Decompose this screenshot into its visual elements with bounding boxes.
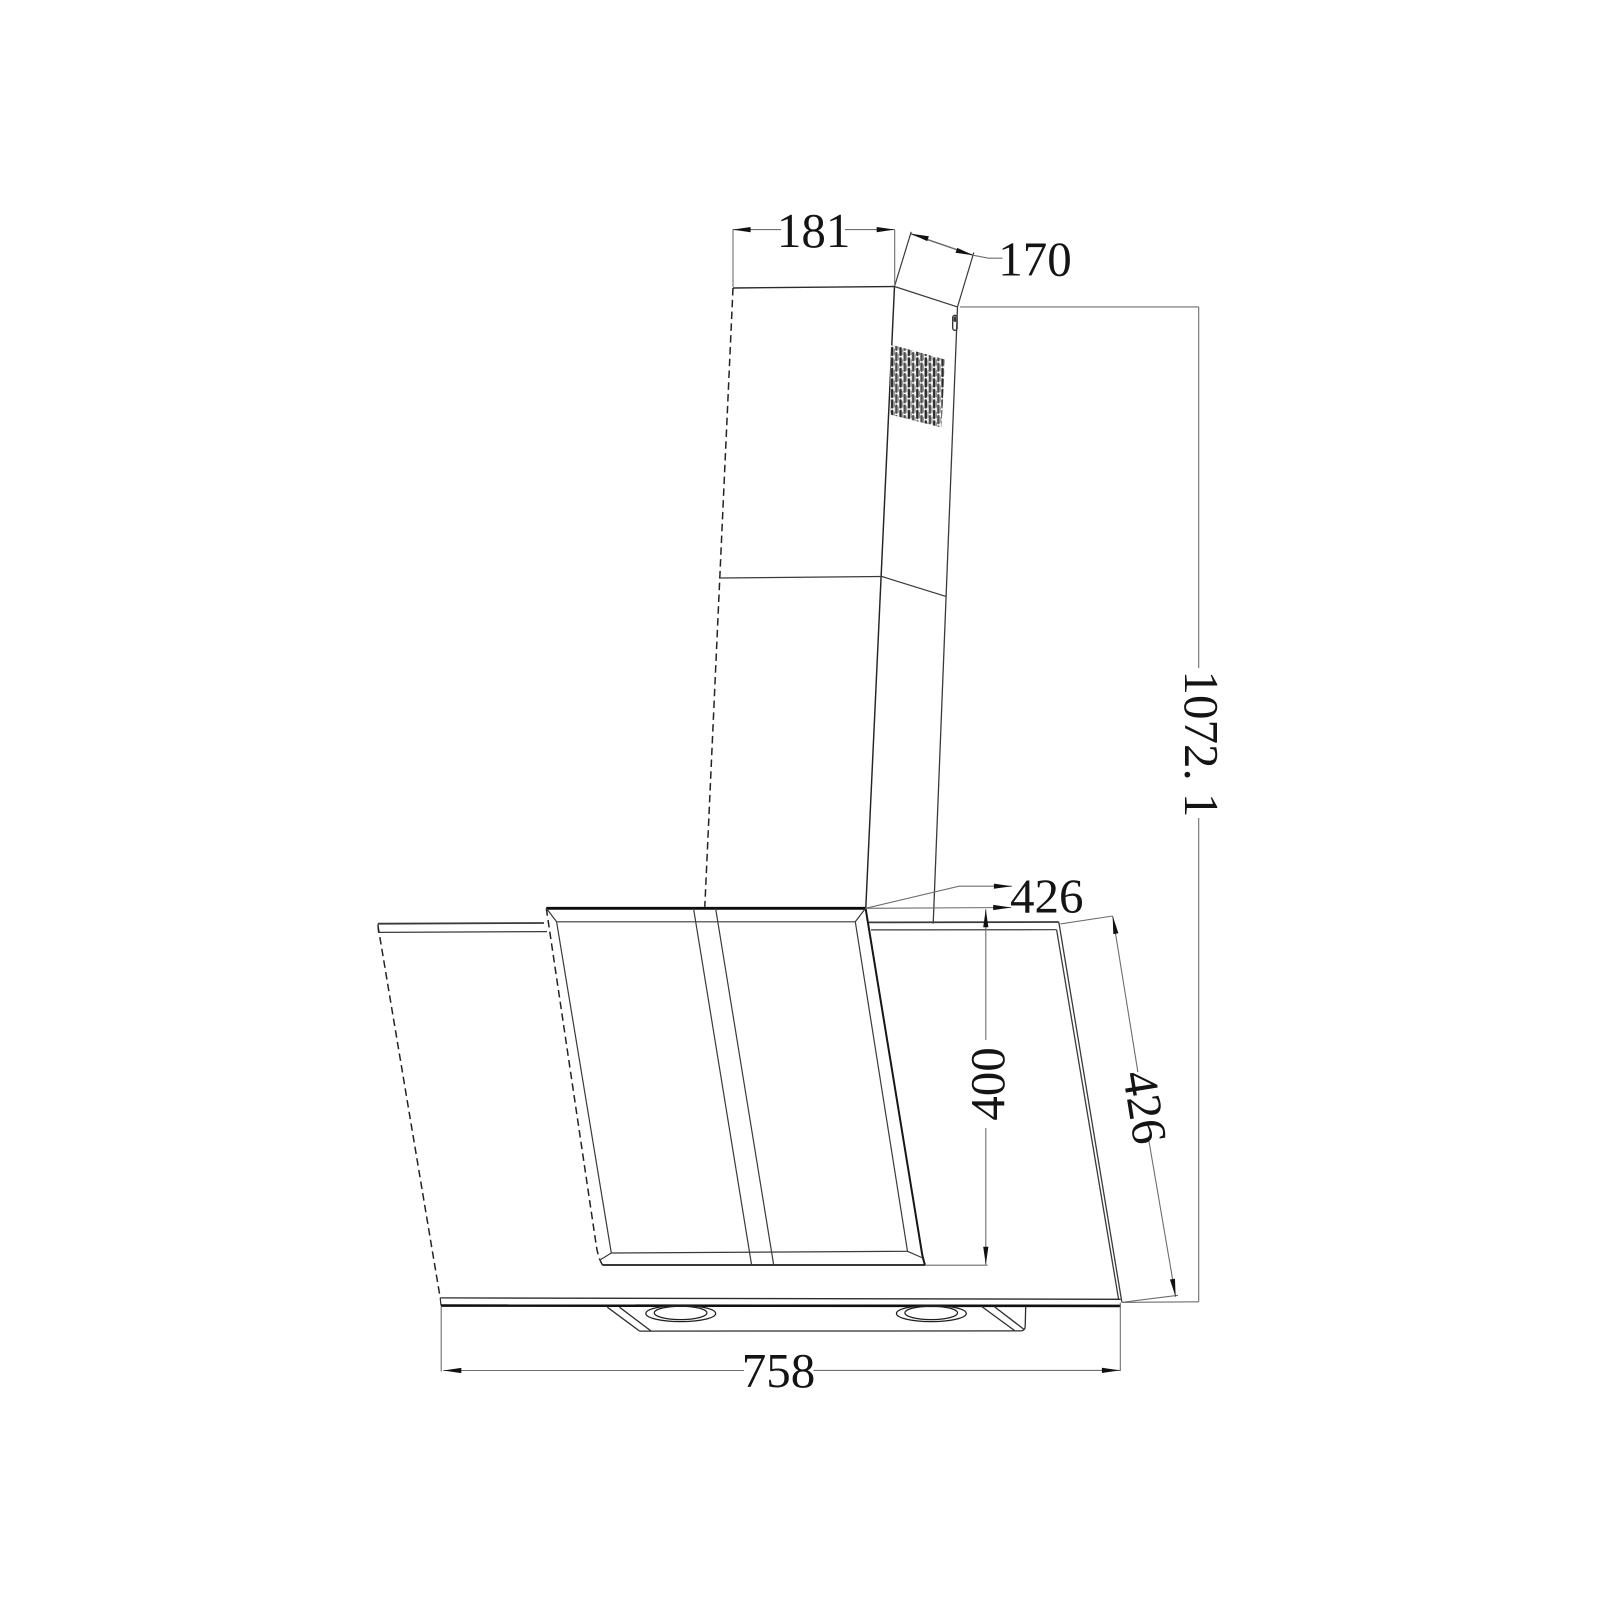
svg-text:170: 170 [998, 231, 1072, 286]
svg-text:181: 181 [777, 203, 851, 258]
svg-text:400: 400 [960, 1047, 1015, 1121]
svg-text:426: 426 [1112, 1066, 1178, 1147]
svg-text:758: 758 [742, 1343, 816, 1398]
svg-text:1072. 1: 1072. 1 [1174, 671, 1229, 818]
svg-text:426: 426 [1010, 869, 1084, 924]
